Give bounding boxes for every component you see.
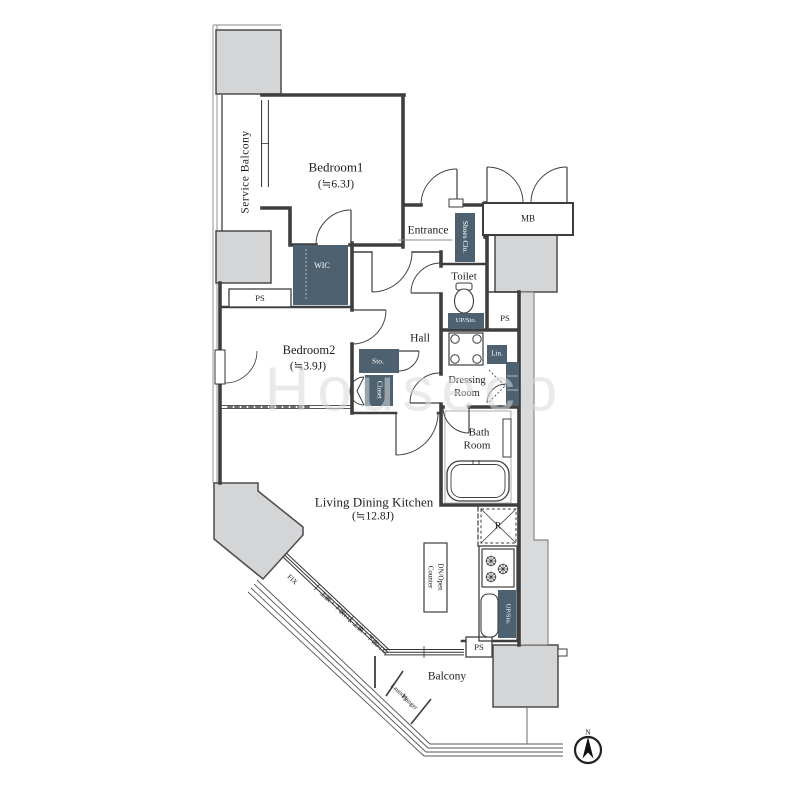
bath-room-label-1: Bath [469, 428, 490, 439]
burner [486, 556, 497, 567]
toilet-fixture [455, 283, 474, 313]
entrance-label: Entrance [408, 225, 449, 237]
ps-kitchen-label: PS [474, 643, 483, 652]
north-arrow [575, 737, 601, 763]
bedroom1-area: (≒6.3J) [318, 179, 354, 191]
storage-boxes [293, 213, 519, 638]
up-sto-kitchen-label: UP/Sto. [504, 604, 511, 624]
wic-label: WIC [314, 262, 330, 270]
bedroom1-label: Bedroom1 [309, 161, 364, 174]
ps-bedroom-label: PS [255, 294, 264, 303]
front-door [421, 169, 463, 207]
mb-double-doors [487, 167, 567, 203]
ps-right-label: PS [500, 314, 509, 323]
up-sto-toilet-label: UP/Sto. [456, 318, 476, 325]
pipe-shaft-strip [519, 292, 548, 645]
column-block-bottom [493, 645, 558, 707]
elevator-block [495, 233, 557, 292]
bedroom2-door [352, 310, 386, 344]
counter-label-2: DN/Open [437, 563, 444, 590]
burner [498, 564, 509, 575]
ldk-label: Living Dining Kitchen [315, 496, 433, 509]
stove [482, 549, 514, 587]
fixtures [447, 283, 517, 641]
toilet-label: Toilet [451, 272, 477, 283]
wic-door [316, 210, 351, 245]
north-label: N [585, 728, 590, 736]
toilet-door [411, 263, 441, 293]
service-balcony-label: Service Balcony [240, 130, 252, 213]
balcony-label: Balcony [428, 671, 466, 683]
counter-label-1: Counter [427, 566, 434, 589]
bath-room-label-2: Room [464, 441, 491, 452]
column-block-left [216, 231, 271, 283]
sink [481, 594, 498, 637]
refrigerator-label: R [495, 522, 501, 532]
floor-plan: Service Balcony Bedroom1 (≒6.3J) Entranc… [0, 0, 785, 800]
watermark: Houseco [265, 355, 566, 426]
balcony-stub [558, 649, 567, 656]
column-block-top-left [216, 30, 281, 94]
hall-label: Hall [410, 333, 430, 345]
ldk-area: (≒12.8J) [352, 511, 394, 523]
shoes-closet-label: Shoes Clo. [461, 221, 469, 254]
entrance-hall-door [372, 252, 412, 292]
wic-box [293, 245, 348, 305]
mb-label: MB [521, 215, 535, 224]
bathtub [447, 460, 509, 501]
column-block-sw [214, 483, 303, 579]
burner [486, 572, 497, 583]
